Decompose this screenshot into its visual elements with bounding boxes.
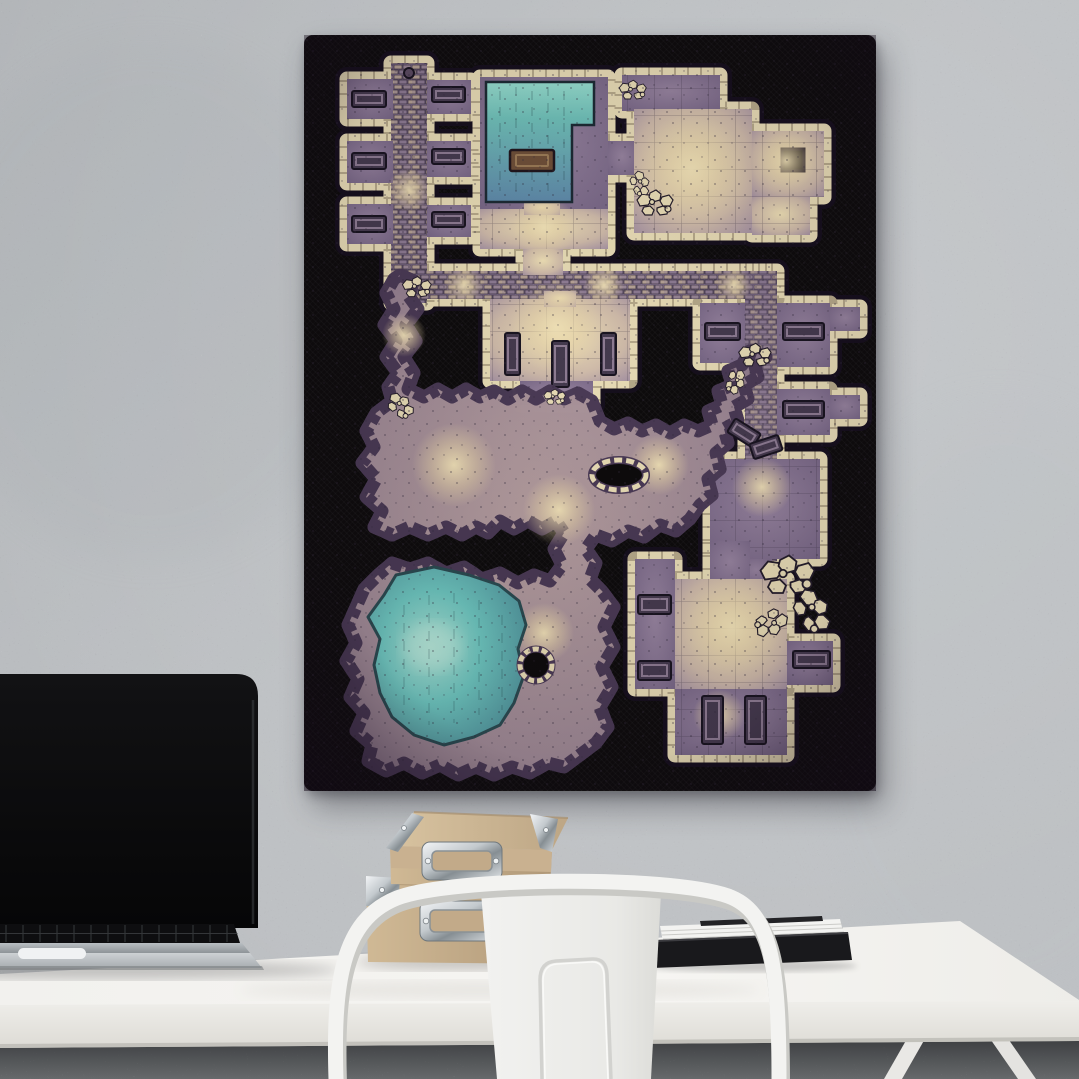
scene (0, 0, 1079, 1079)
laptop-trackpad-notch (18, 948, 86, 959)
label-holder (422, 842, 502, 880)
laptop (0, 674, 340, 979)
laptop-screen (0, 674, 258, 928)
chair-backrest (481, 893, 661, 1079)
foreground (0, 0, 1079, 1079)
